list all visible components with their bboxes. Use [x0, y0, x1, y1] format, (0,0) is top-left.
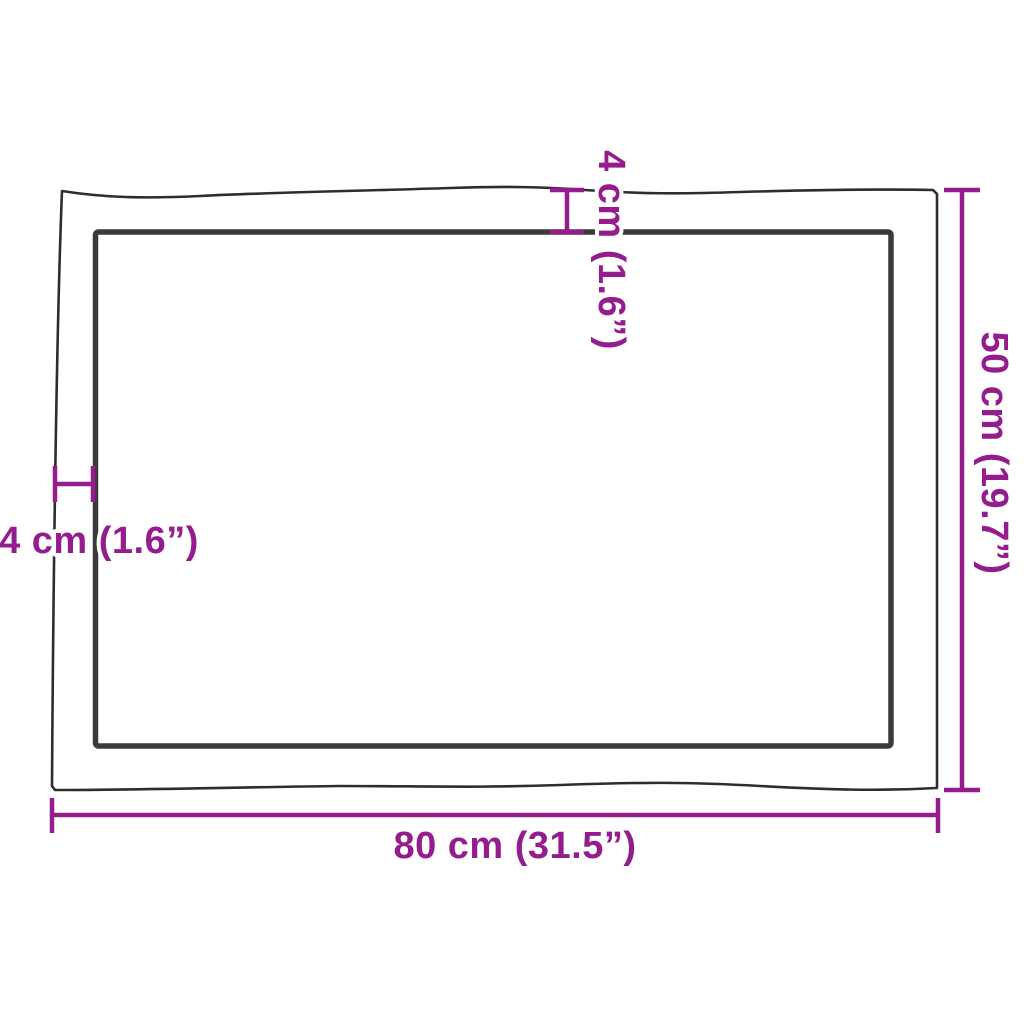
edge-left-dimension-label: 4 cm (1.6”) — [0, 520, 199, 562]
edge-thickness-dimension-left: 4 cm (1.6”) — [0, 466, 199, 562]
edge-top-dimension-label: 4 cm (1.6”) — [590, 150, 632, 350]
dimension-diagram: 80 cm (31.5”) 50 cm (19.7”) 4 cm (1.6”) … — [0, 0, 1024, 1024]
edge-thickness-dimension-top: 4 cm (1.6”) — [550, 150, 632, 350]
height-dimension: 50 cm (19.7”) — [944, 190, 1015, 790]
width-dimension: 80 cm (31.5”) — [52, 798, 938, 867]
width-dimension-label: 80 cm (31.5”) — [393, 825, 636, 867]
height-dimension-label: 50 cm (19.7”) — [973, 331, 1015, 574]
tabletop-inner-edge — [96, 232, 892, 746]
diagram-canvas: 80 cm (31.5”) 50 cm (19.7”) 4 cm (1.6”) … — [0, 0, 1024, 1024]
board-live-edge-outline — [52, 187, 937, 790]
